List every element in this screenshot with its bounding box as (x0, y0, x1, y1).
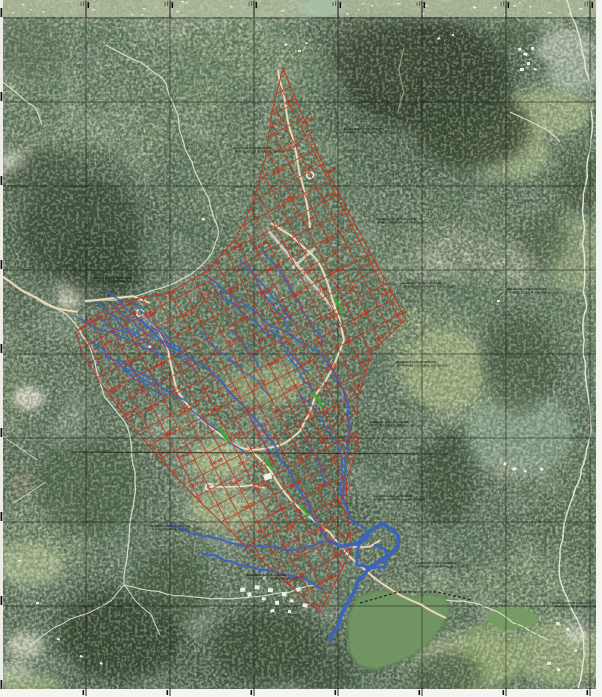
svg-text:PARCELACION RURAL BO. SUSUA: PARCELACION RURAL BO. SUSUA (509, 291, 558, 295)
svg-text:PARCELACION RURAL BO. SUSUA: PARCELACION RURAL BO. SUSUA (375, 498, 424, 502)
svg-text:PARCELACION RURAL BO. SUSUA: PARCELACION RURAL BO. SUSUA (378, 221, 427, 225)
svg-text:PARCELACION RURAL BO. SUSUA: PARCELACION RURAL BO. SUSUA (152, 528, 201, 532)
svg-text:PARCELACION RURAL BO. SUSUA: PARCELACION RURAL BO. SUSUA (346, 131, 395, 135)
svg-text:PARCELACION RURAL BO. SUSUA: PARCELACION RURAL BO. SUSUA (248, 577, 297, 581)
svg-text:PARCELACION RURAL BO. SUSUA: PARCELACION RURAL BO. SUSUA (554, 605, 602, 609)
svg-text:PARCELACION RURAL BO. SUSUA: PARCELACION RURAL BO. SUSUA (371, 424, 420, 428)
svg-text:PARCELACION RURAL BO. SUSUA: PARCELACION RURAL BO. SUSUA (94, 280, 143, 284)
svg-text:PARCELACION RURAL BO. SUSUA: PARCELACION RURAL BO. SUSUA (404, 285, 453, 289)
svg-text:PARCELACION RURAL BO. SUSUA: PARCELACION RURAL BO. SUSUA (235, 150, 284, 154)
svg-text:PARCELACION RURAL BO. SUSUA: PARCELACION RURAL BO. SUSUA (418, 565, 467, 569)
svg-text:PARCELACION RURAL BO. SUSUA: PARCELACION RURAL BO. SUSUA (398, 364, 447, 368)
